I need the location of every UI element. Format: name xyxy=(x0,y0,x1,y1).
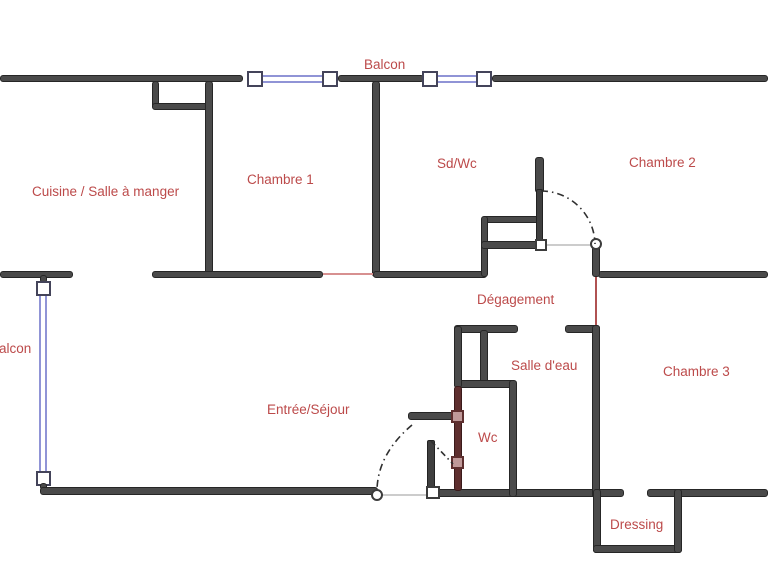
door-leaf-sdwc xyxy=(536,189,543,243)
door-strike-dot xyxy=(371,489,383,501)
room-label-wc: Wc xyxy=(478,430,498,445)
wall-middle-right xyxy=(598,271,768,278)
wall-connector xyxy=(451,410,464,423)
door-swing-arc-entrance xyxy=(377,425,412,489)
wall-top-middle xyxy=(338,75,424,82)
door-opening-line xyxy=(382,494,428,496)
door-opening-line xyxy=(547,244,591,246)
wall-sdwc-closet-bottom xyxy=(481,241,539,249)
door-swing-arc-sdwc xyxy=(541,191,595,244)
wall-duct-bottom xyxy=(152,103,213,110)
wall-opening-red xyxy=(323,273,375,276)
window-connector xyxy=(476,71,492,87)
door-strike-dot xyxy=(590,238,602,250)
wall-dressing-left xyxy=(593,489,601,553)
wall-sdwc-closet-top xyxy=(482,216,539,223)
wall-wc-left-upper xyxy=(454,326,462,388)
wall-wc-right xyxy=(509,380,517,497)
wall-wc-left-modified xyxy=(454,386,462,491)
room-label-balcon-top: Balcon xyxy=(364,57,405,72)
railing-connector xyxy=(36,281,51,296)
doorway-red-line xyxy=(595,277,598,326)
room-label-chambre1: Chambre 1 xyxy=(247,172,314,187)
wall-top-right xyxy=(492,75,768,82)
room-label-chambre2: Chambre 2 xyxy=(629,155,696,170)
wall-dressing-right xyxy=(674,489,682,553)
wall-middle-left xyxy=(0,271,73,278)
room-label-cuisine: Cuisine / Salle à manger xyxy=(32,184,179,199)
floor-plan: Balcon Cuisine / Salle à manger Chambre … xyxy=(0,0,768,576)
room-label-dressing: Dressing xyxy=(610,517,663,532)
balcony-railing xyxy=(39,294,47,475)
wall-wc-top xyxy=(454,380,516,388)
room-label-entree: Entrée/Séjour xyxy=(267,402,350,417)
wall-wc-door-stub xyxy=(408,412,457,420)
room-label-chambre3: Chambre 3 xyxy=(663,364,730,379)
wall-chambre3-left xyxy=(592,325,600,498)
window-pane xyxy=(436,75,478,83)
wall-middle-cuisine xyxy=(152,271,323,278)
window-pane xyxy=(261,75,325,83)
wall-bottom-entree xyxy=(40,487,378,495)
wall-dressing-bottom xyxy=(593,545,682,553)
door-hinge xyxy=(535,239,547,251)
wall-middle-sdwc xyxy=(373,271,487,278)
wall-bottom-right xyxy=(647,489,768,497)
wall-chambre1-sdwc xyxy=(372,81,380,277)
wall-sdwc-door-stub xyxy=(535,157,544,193)
wall-cuisine-chambre1 xyxy=(205,81,213,277)
door-hinge xyxy=(426,486,440,499)
window-connector xyxy=(247,71,263,87)
room-label-salledeau: Salle d'eau xyxy=(511,358,577,373)
window-connector xyxy=(422,71,438,87)
wall-connector xyxy=(451,456,464,469)
wall-salledeau-partition xyxy=(480,330,488,385)
room-label-balcon-left: Balcon xyxy=(0,341,31,356)
room-label-degagement: Dégagement xyxy=(477,292,554,307)
window-connector xyxy=(322,71,338,87)
room-label-sdwc: Sd/Wc xyxy=(437,156,477,171)
